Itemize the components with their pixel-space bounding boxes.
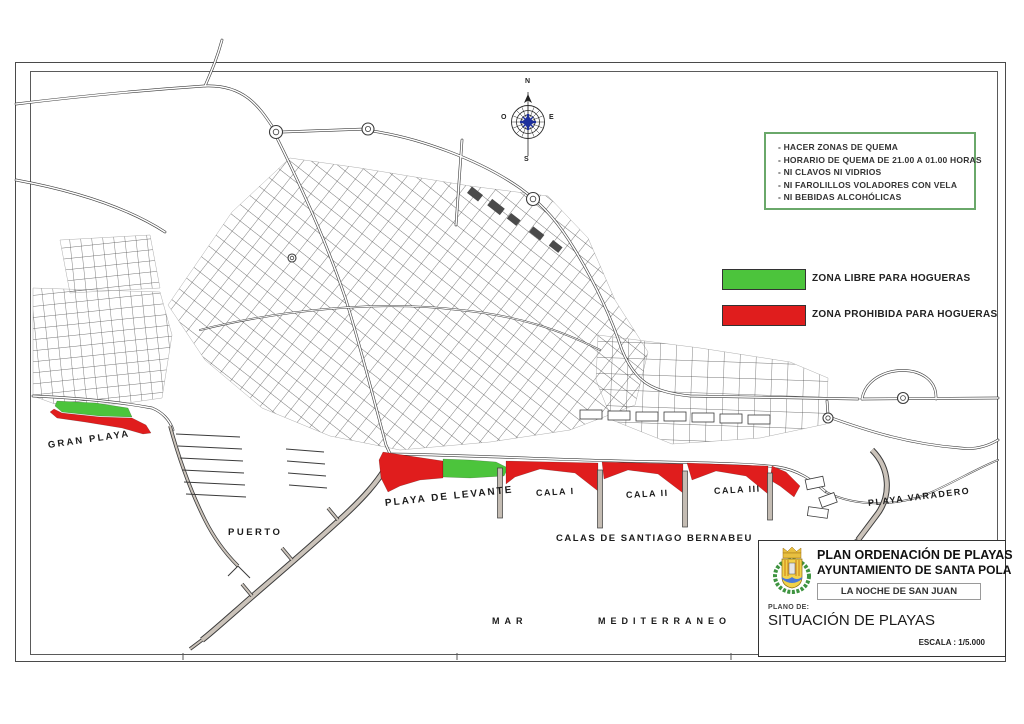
label-puerto: PUERTO: [228, 527, 282, 538]
label-calas-santiago-bernabeu: CALAS DE SANTIAGO BERNABEU: [556, 533, 753, 544]
legend-prohibited-zone-swatch: [722, 305, 806, 326]
label-mediterraneo: MEDITERRANEO: [598, 616, 731, 626]
levante-prohibited-zone-west: [379, 452, 443, 492]
santa-pola-coat-of-arms: [770, 546, 814, 598]
label-cala-i: CALA I: [536, 486, 575, 498]
compass-west-label: O: [501, 114, 506, 121]
scale-label: ESCALA : 1/5.000: [919, 638, 985, 647]
label-mar: MAR: [492, 616, 528, 626]
title-block: PLAN ORDENACIÓN DE PLAYAS AYUNTAMIENTO D…: [758, 540, 1006, 657]
rule-item: - NI BEBIDAS ALCOHÓLICAS: [778, 191, 970, 204]
plan-name: SITUACIÓN DE PLAYAS: [768, 612, 935, 629]
frame-ticks: [183, 653, 731, 660]
port-jetties: [176, 434, 327, 497]
compass-east-label: E: [549, 114, 554, 121]
northwest-blocks-area: [60, 235, 160, 293]
bonfire-rules-box: - HACER ZONAS DE QUEMA - HORARIO DE QUEM…: [764, 132, 976, 210]
west-grid-area: [33, 288, 172, 404]
rule-item: - NI CLAVOS NI VIDRIOS: [778, 166, 970, 179]
legend-free-zone-swatch: [722, 269, 806, 290]
legend-free-zone-label: ZONA LIBRE PARA HOGUERAS: [812, 273, 971, 284]
beach-plan-page: N S E O - HACER ZONAS DE QUEMA - HORARIO…: [0, 0, 1024, 724]
plan-title-line1: PLAN ORDENACIÓN DE PLAYAS: [817, 548, 1001, 562]
compass-north-label: N: [525, 78, 530, 85]
east-grid-area: [596, 335, 828, 444]
event-name-box: LA NOCHE DE SAN JUAN: [817, 583, 981, 600]
town-grid-area: [168, 158, 648, 450]
rule-item: - NI FAROLILLOS VOLADORES CON VELA: [778, 179, 970, 192]
plan-title-line2: AYUNTAMIENTO DE SANTA POLA: [817, 563, 1001, 577]
compass-south-label: S: [524, 156, 529, 163]
rule-item: - HORARIO DE QUEMA DE 21.00 A 01.00 HORA…: [778, 154, 970, 167]
legend-prohibited-zone-label: ZONA PROHIBIDA PARA HOGUERAS: [812, 309, 997, 320]
compass-rose-icon: [512, 92, 545, 156]
rule-item: - HACER ZONAS DE QUEMA: [778, 141, 970, 154]
plan-type-label: PLANO DE:: [768, 604, 809, 611]
